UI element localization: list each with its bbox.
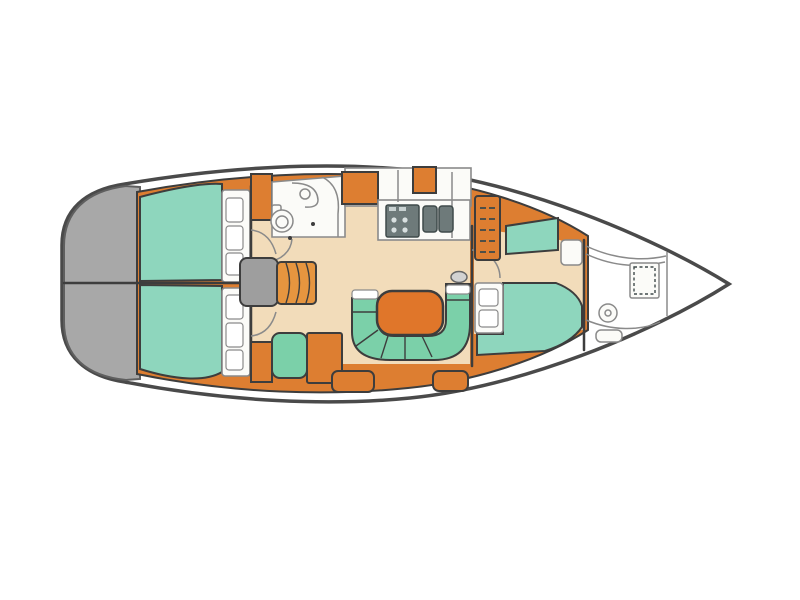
stove-control <box>389 207 396 211</box>
windlass <box>599 304 617 322</box>
settee-end-cushion <box>446 285 470 294</box>
berth-cushion <box>479 289 498 306</box>
galley-cabinet-left <box>342 172 378 204</box>
burner <box>391 227 396 232</box>
aft-cabin-starboard-berth <box>140 285 222 378</box>
drain-dot <box>311 222 315 226</box>
floor-plan-drawing <box>0 0 800 600</box>
aft-cabin-port-berth <box>140 184 222 281</box>
aft-bulkhead-cabinet-bottom <box>251 342 272 382</box>
galley-sink-left <box>423 206 437 232</box>
stove-control <box>399 207 406 211</box>
galley-cabinet-top <box>413 167 436 193</box>
stowage-locker <box>433 371 468 391</box>
bow-fitting <box>596 330 622 342</box>
saloon-table <box>377 291 443 335</box>
boat-floor-plan <box>0 0 800 600</box>
galley-sink-right <box>439 206 453 232</box>
mast-step <box>451 272 467 283</box>
berth-cushion <box>226 198 243 222</box>
forward-cabin-vanity <box>561 240 582 265</box>
companionway-landing <box>240 258 278 306</box>
nav-seat <box>272 333 307 378</box>
burner <box>402 227 407 232</box>
burner <box>402 217 407 222</box>
burner <box>391 217 396 222</box>
hanging-locker-shelves <box>475 196 500 260</box>
door-hinge-dot <box>288 236 292 240</box>
aft-bulkhead-cabinet-top <box>251 174 272 220</box>
berth-cushion <box>226 226 243 250</box>
stowage-locker <box>332 371 374 392</box>
berth-cushion <box>479 310 498 327</box>
berth-cushion <box>226 323 243 347</box>
settee-end-cushion <box>352 290 378 299</box>
berth-cushion <box>226 350 243 370</box>
